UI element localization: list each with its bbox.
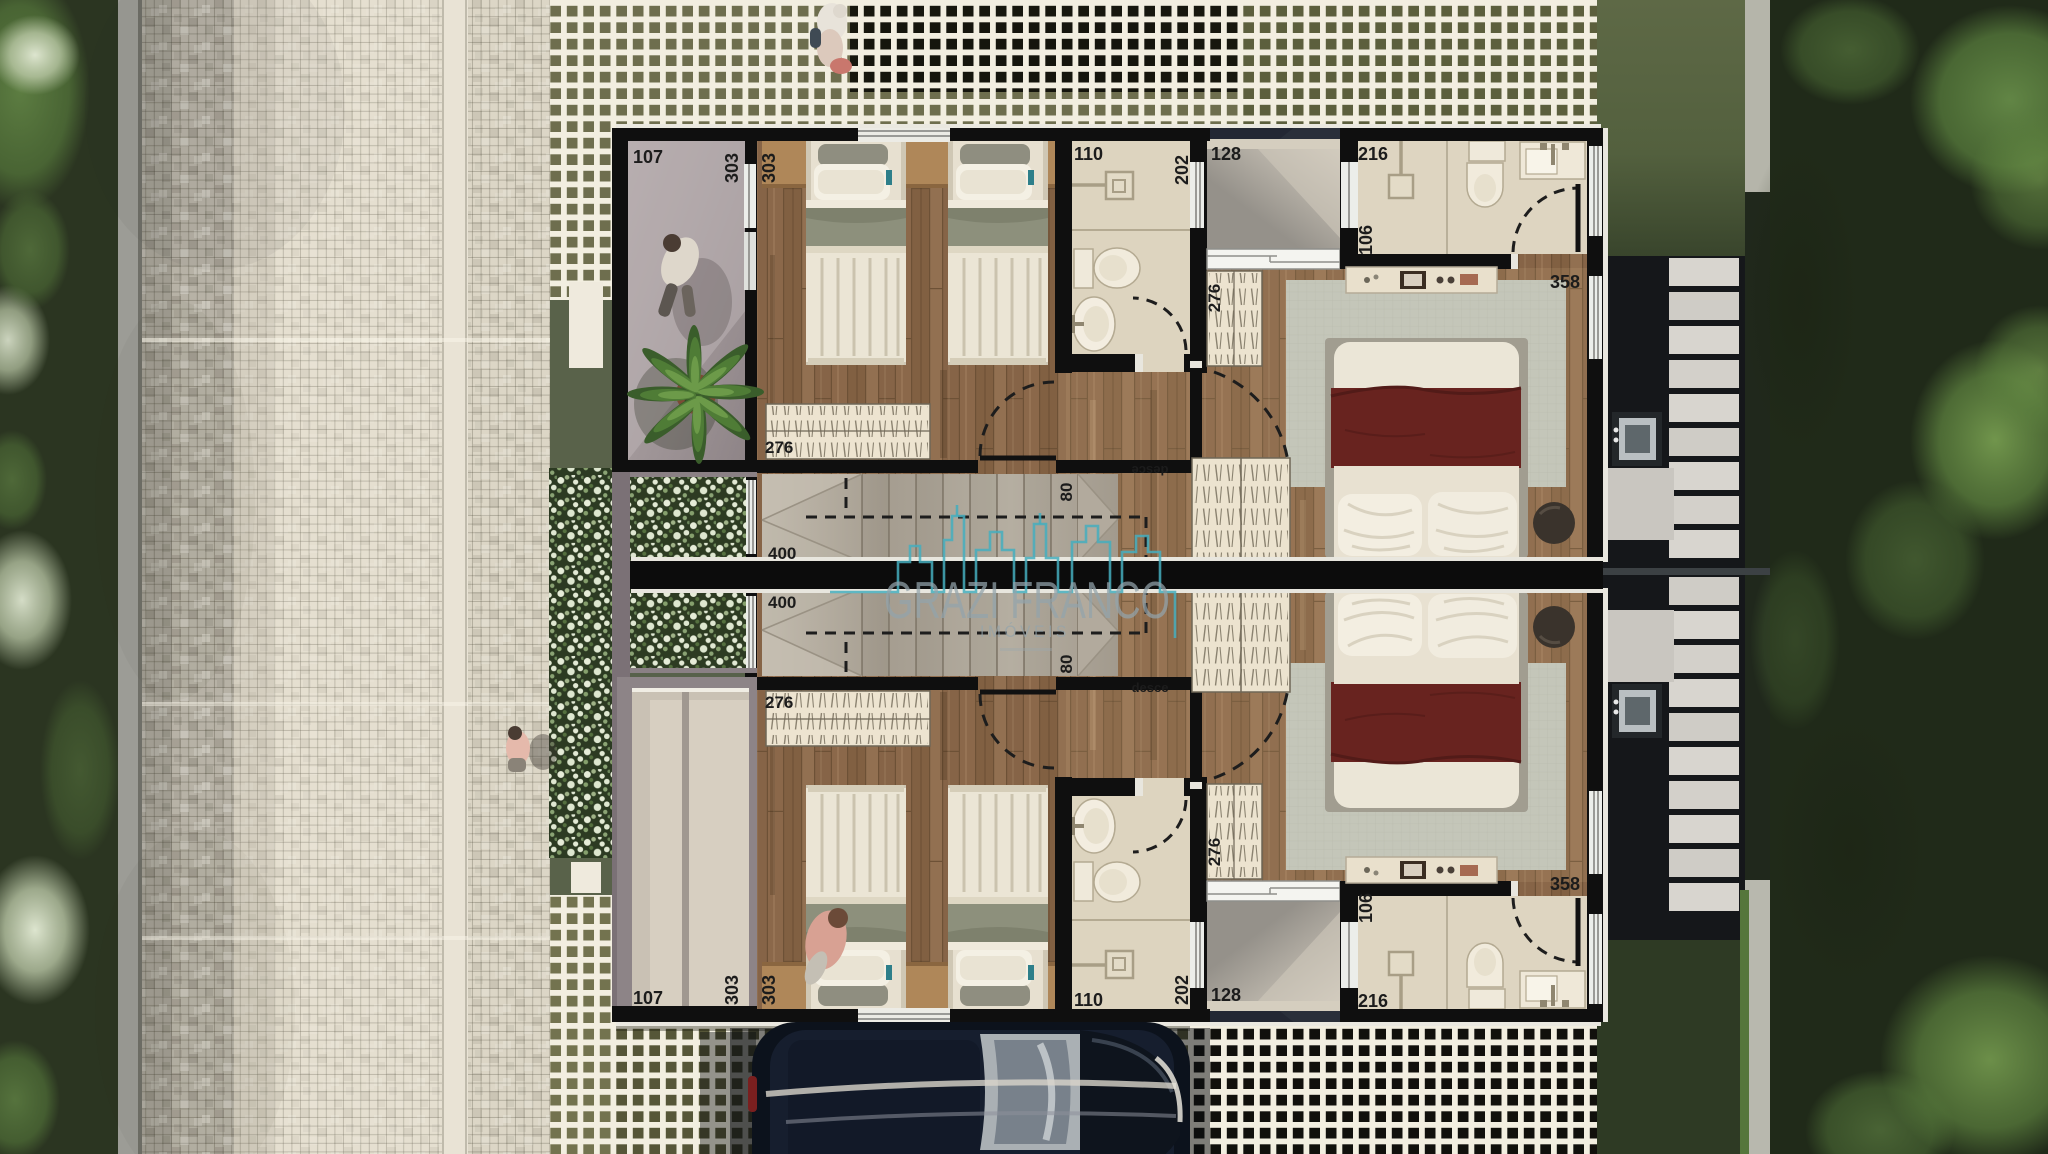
svg-text:276: 276 bbox=[765, 438, 793, 457]
svg-text:400: 400 bbox=[768, 593, 796, 612]
svg-text:110: 110 bbox=[1074, 990, 1103, 1010]
svg-text:276: 276 bbox=[1205, 284, 1224, 312]
svg-text:202: 202 bbox=[1172, 155, 1192, 185]
svg-text:216: 216 bbox=[1358, 144, 1388, 164]
svg-text:358: 358 bbox=[1550, 874, 1580, 894]
svg-text:106: 106 bbox=[1356, 225, 1376, 255]
svg-text:107: 107 bbox=[633, 147, 663, 167]
svg-text:202: 202 bbox=[1172, 975, 1192, 1005]
svg-text:106: 106 bbox=[1356, 893, 1376, 923]
svg-text:128: 128 bbox=[1211, 144, 1241, 164]
svg-text:107: 107 bbox=[633, 988, 663, 1008]
svg-text:216: 216 bbox=[1358, 991, 1388, 1011]
svg-text:80: 80 bbox=[1057, 655, 1076, 674]
svg-text:303: 303 bbox=[722, 153, 742, 183]
svg-text:276: 276 bbox=[765, 693, 793, 712]
svg-text:358: 358 bbox=[1550, 272, 1580, 292]
svg-text:80: 80 bbox=[1057, 483, 1076, 502]
svg-text:303: 303 bbox=[759, 153, 779, 183]
svg-text:128: 128 bbox=[1211, 985, 1241, 1005]
svg-text:303: 303 bbox=[759, 975, 779, 1005]
svg-text:IMÓVEIS: IMÓVEIS bbox=[980, 622, 1070, 641]
svg-text:desce: desce bbox=[1132, 680, 1169, 695]
svg-text:desce: desce bbox=[1132, 463, 1169, 478]
svg-text:110: 110 bbox=[1074, 144, 1103, 164]
svg-text:303: 303 bbox=[722, 975, 742, 1005]
svg-text:276: 276 bbox=[1205, 838, 1224, 866]
svg-text:400: 400 bbox=[768, 544, 796, 563]
